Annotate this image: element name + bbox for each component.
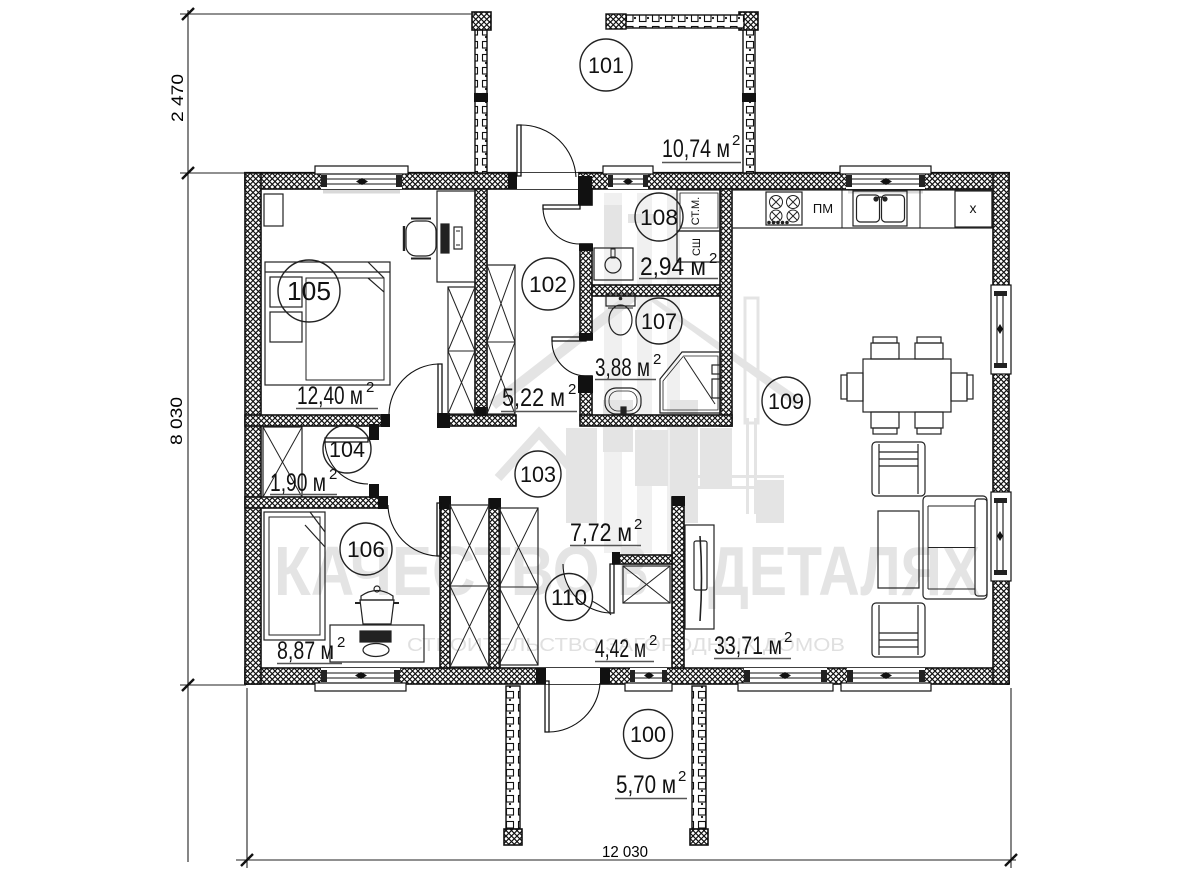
svg-text:2: 2 bbox=[709, 250, 717, 267]
svg-text:8 030: 8 030 bbox=[167, 397, 186, 445]
svg-text:33,71 м: 33,71 м bbox=[714, 632, 782, 660]
svg-text:2: 2 bbox=[568, 381, 576, 398]
svg-text:12 030: 12 030 bbox=[602, 844, 648, 861]
svg-text:2: 2 bbox=[732, 132, 740, 149]
svg-text:8,87 м: 8,87 м bbox=[277, 637, 334, 665]
svg-text:2: 2 bbox=[784, 629, 792, 646]
svg-text:СТ.М.: СТ.М. bbox=[690, 197, 702, 225]
svg-text:105: 105 bbox=[287, 276, 331, 306]
svg-text:2 470: 2 470 bbox=[168, 74, 187, 122]
svg-text:102: 102 bbox=[529, 272, 567, 297]
svg-text:2: 2 bbox=[366, 379, 374, 396]
svg-text:СШ: СШ bbox=[691, 238, 703, 256]
svg-text:12,40 м: 12,40 м bbox=[297, 382, 363, 410]
svg-text:108: 108 bbox=[640, 205, 678, 230]
svg-text:4,42 м: 4,42 м bbox=[595, 635, 646, 663]
svg-text:104: 104 bbox=[329, 437, 365, 462]
svg-text:106: 106 bbox=[347, 537, 385, 562]
svg-text:7,72 м: 7,72 м bbox=[570, 519, 632, 547]
svg-text:2: 2 bbox=[634, 516, 642, 533]
svg-text:3,88 м: 3,88 м bbox=[595, 354, 650, 382]
svg-text:5,22 м: 5,22 м bbox=[502, 384, 565, 412]
svg-text:2: 2 bbox=[329, 466, 337, 483]
svg-text:2: 2 bbox=[649, 632, 657, 649]
svg-text:2: 2 bbox=[337, 634, 345, 651]
svg-text:5,70 м: 5,70 м bbox=[616, 771, 676, 799]
svg-text:103: 103 bbox=[520, 462, 556, 487]
svg-text:1,90 м: 1,90 м bbox=[270, 469, 326, 497]
svg-text:2: 2 bbox=[653, 351, 661, 368]
svg-text:2: 2 bbox=[678, 768, 686, 785]
svg-text:110: 110 bbox=[551, 585, 587, 610]
svg-text:100: 100 bbox=[630, 722, 666, 747]
svg-text:10,74 м: 10,74 м bbox=[662, 135, 730, 163]
svg-text:2,94 м: 2,94 м bbox=[640, 253, 706, 281]
svg-text:x: x bbox=[970, 200, 977, 216]
svg-text:109: 109 bbox=[768, 389, 804, 414]
svg-text:ПМ: ПМ bbox=[813, 201, 833, 216]
svg-text:101: 101 bbox=[588, 53, 624, 78]
svg-text:107: 107 bbox=[641, 309, 677, 334]
